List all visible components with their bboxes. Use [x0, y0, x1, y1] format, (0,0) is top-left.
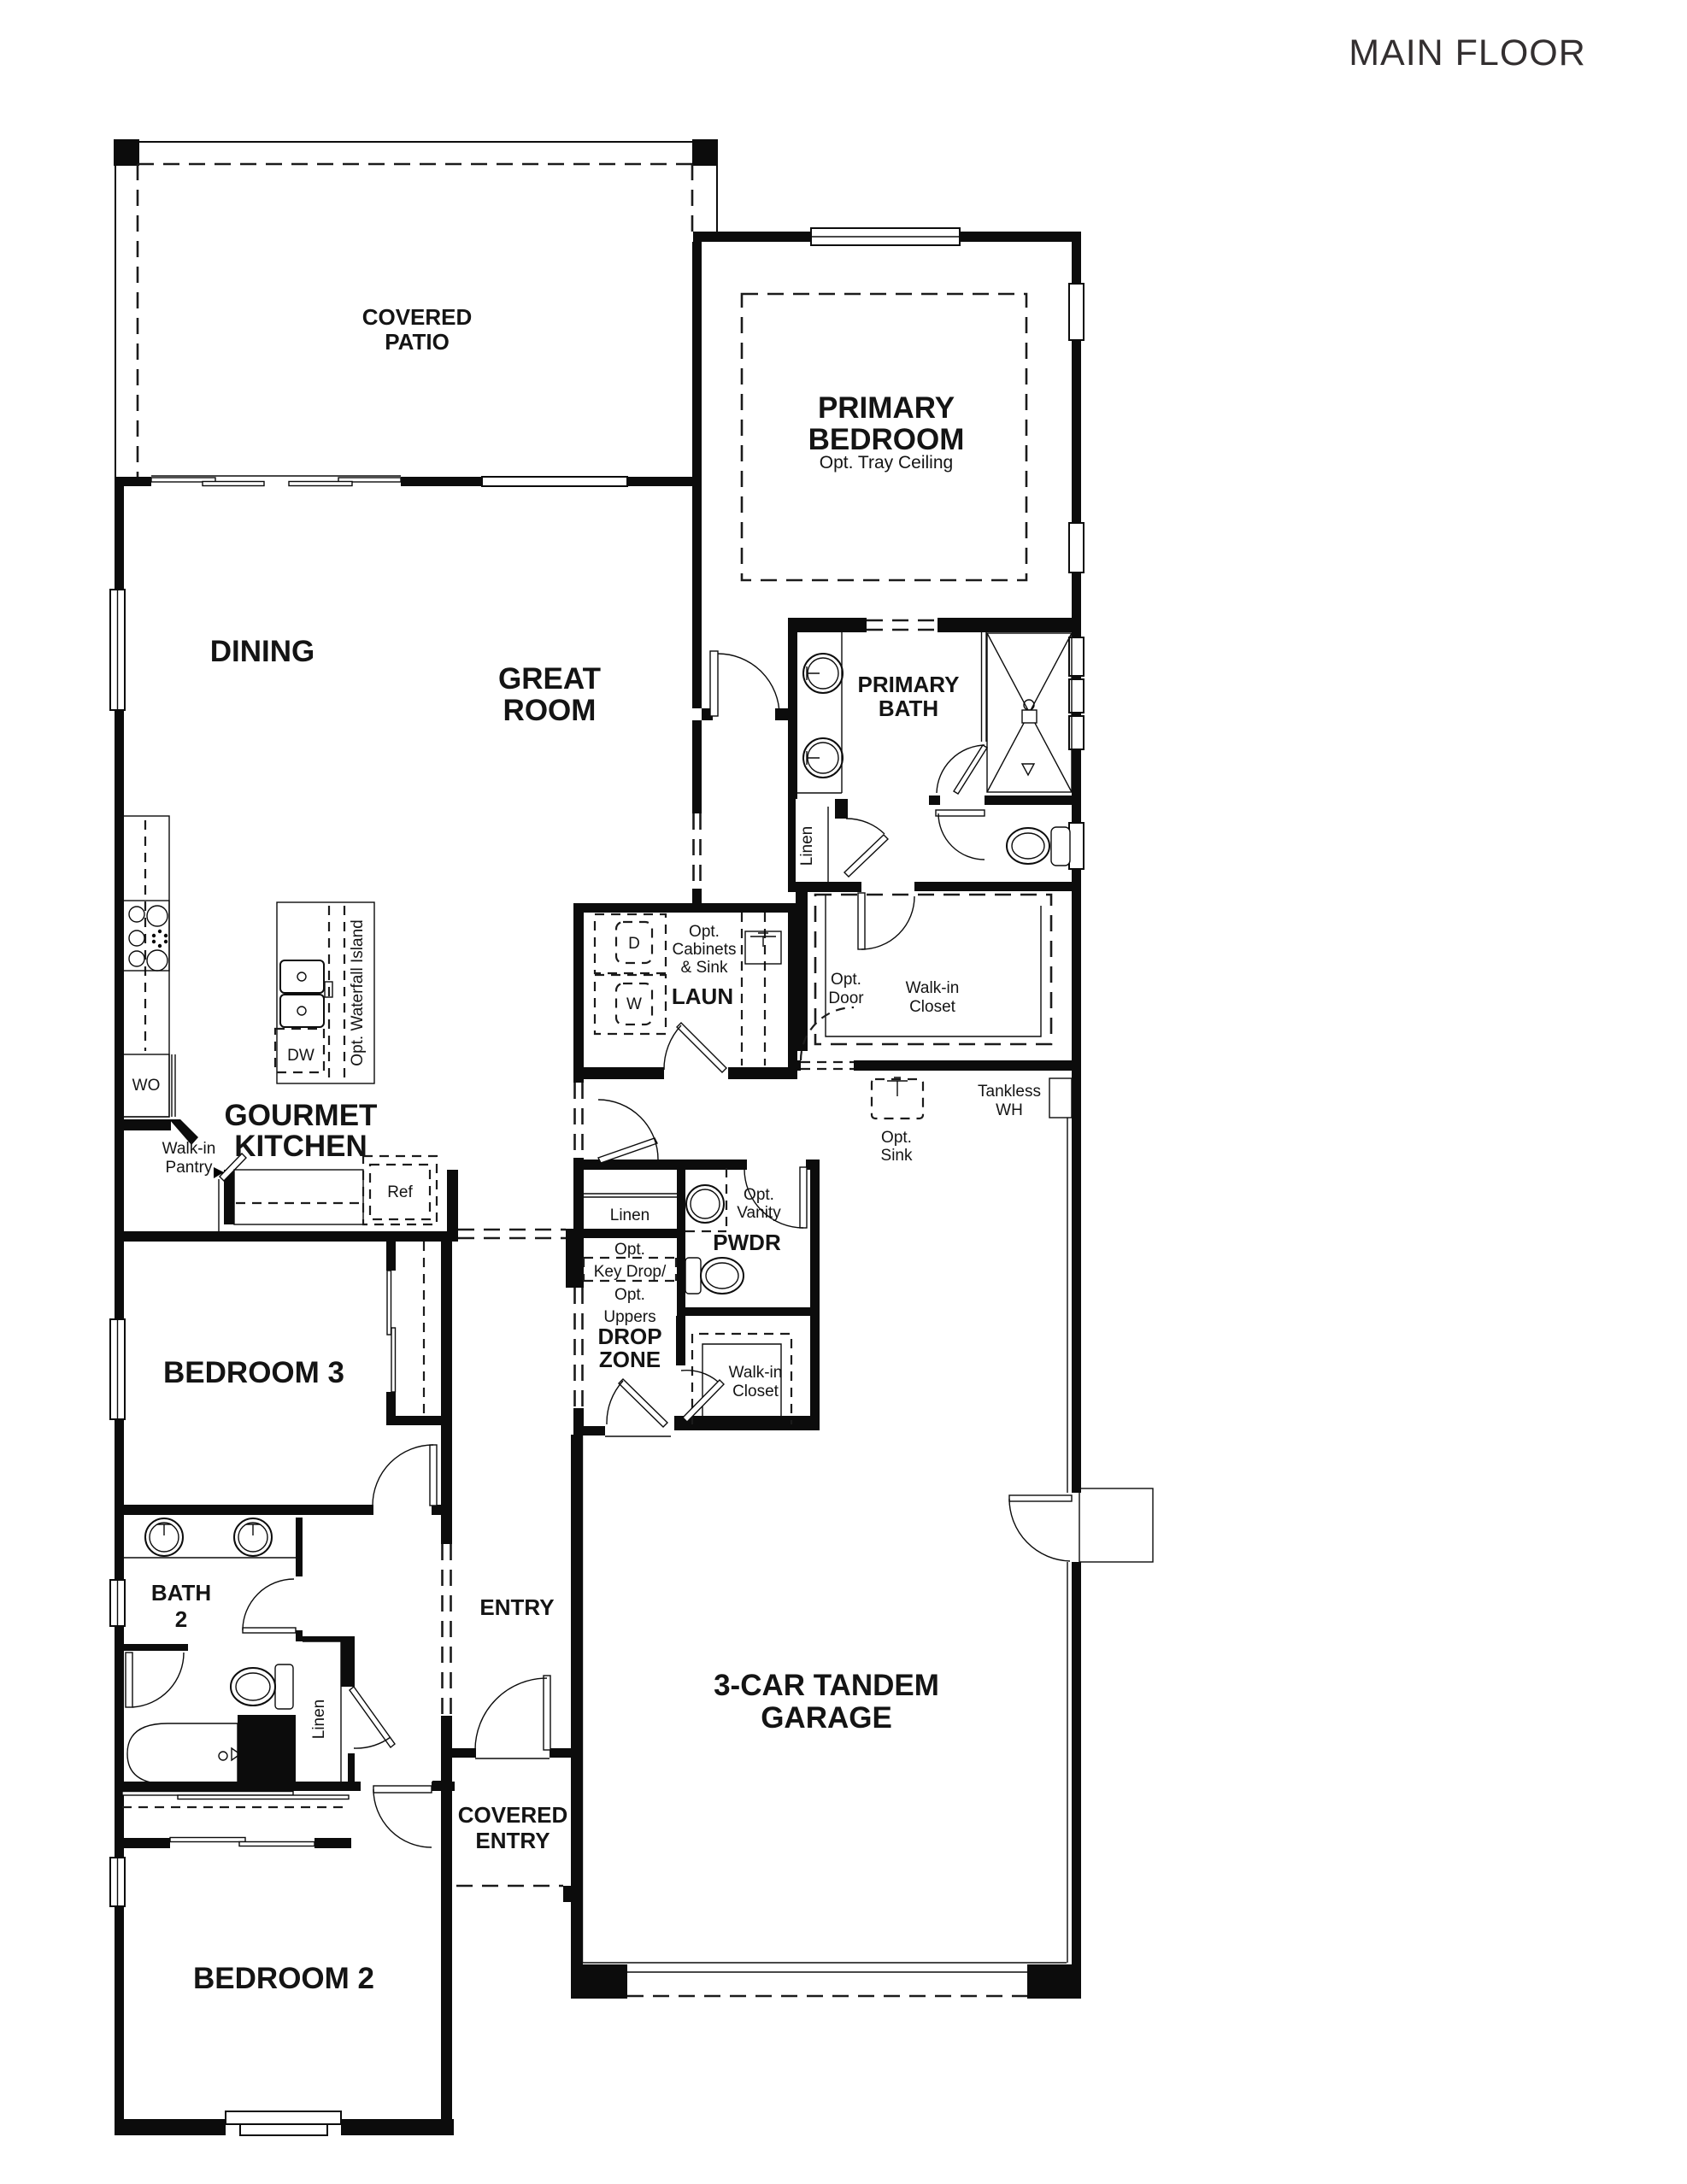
svg-text:Opt.: Opt.: [831, 971, 861, 989]
svg-text:2: 2: [175, 1606, 187, 1632]
svg-text:WO: WO: [132, 1077, 161, 1095]
svg-text:Linen: Linen: [798, 826, 816, 866]
svg-text:COVERED: COVERED: [362, 304, 473, 330]
svg-text:ROOM: ROOM: [503, 694, 597, 727]
svg-text:Opt. Tray Ceiling: Opt. Tray Ceiling: [820, 453, 953, 473]
svg-text:BEDROOM 2: BEDROOM 2: [193, 1962, 374, 1995]
svg-text:Linen: Linen: [310, 1700, 328, 1740]
svg-text:BATH: BATH: [151, 1580, 211, 1606]
svg-text:Door: Door: [828, 989, 864, 1007]
svg-text:Opt. Waterfall Island: Opt. Waterfall Island: [349, 919, 367, 1066]
svg-text:PATIO: PATIO: [385, 329, 450, 355]
svg-text:COVERED: COVERED: [458, 1802, 568, 1828]
svg-text:Sink: Sink: [881, 1147, 913, 1165]
svg-text:Opt.: Opt.: [744, 1186, 774, 1204]
svg-text:Opt.: Opt.: [881, 1129, 912, 1147]
svg-text:DW: DW: [287, 1047, 314, 1065]
svg-text:PRIMARY: PRIMARY: [858, 672, 960, 697]
svg-text:PRIMARY: PRIMARY: [818, 391, 955, 425]
svg-text:Closet: Closet: [732, 1383, 779, 1400]
svg-text:WH: WH: [996, 1101, 1023, 1119]
svg-text:ENTRY: ENTRY: [475, 1828, 550, 1853]
svg-text:GOURMET: GOURMET: [225, 1099, 378, 1132]
svg-text:Walk-in: Walk-in: [162, 1140, 216, 1158]
svg-text:Key Drop/: Key Drop/: [594, 1263, 667, 1281]
svg-text:Linen: Linen: [610, 1206, 650, 1224]
svg-text:D: D: [628, 935, 640, 953]
svg-text:BATH: BATH: [879, 696, 938, 721]
svg-text:DINING: DINING: [210, 635, 315, 668]
svg-text:& Sink: & Sink: [681, 959, 728, 977]
svg-text:BEDROOM 3: BEDROOM 3: [163, 1356, 344, 1389]
svg-text:Closet: Closet: [909, 998, 956, 1016]
svg-text:Cabinets: Cabinets: [673, 941, 737, 959]
svg-text:DROP: DROP: [597, 1324, 661, 1349]
svg-text:ENTRY: ENTRY: [479, 1594, 554, 1620]
svg-text:W: W: [626, 995, 642, 1013]
svg-text:MAIN FLOOR: MAIN FLOOR: [1349, 32, 1586, 73]
svg-text:Vanity: Vanity: [737, 1204, 781, 1222]
svg-text:LAUN: LAUN: [672, 983, 733, 1009]
svg-text:Opt.: Opt.: [689, 923, 720, 941]
svg-text:BEDROOM: BEDROOM: [808, 423, 965, 456]
svg-text:PWDR: PWDR: [713, 1230, 781, 1255]
svg-text:Uppers: Uppers: [603, 1308, 655, 1326]
svg-text:Opt.: Opt.: [614, 1286, 645, 1304]
svg-text:Walk-in: Walk-in: [729, 1364, 783, 1382]
svg-text:GARAGE: GARAGE: [761, 1701, 892, 1735]
svg-text:Opt.: Opt.: [614, 1241, 645, 1259]
svg-text:Pantry: Pantry: [166, 1159, 213, 1177]
svg-text:Tankless: Tankless: [978, 1083, 1041, 1101]
svg-text:Walk-in: Walk-in: [906, 979, 960, 997]
svg-text:ZONE: ZONE: [599, 1347, 661, 1372]
svg-text:Ref: Ref: [387, 1183, 413, 1201]
svg-text:3-CAR TANDEM: 3-CAR TANDEM: [714, 1669, 939, 1702]
svg-text:KITCHEN: KITCHEN: [234, 1130, 367, 1163]
svg-text:GREAT: GREAT: [498, 662, 601, 696]
